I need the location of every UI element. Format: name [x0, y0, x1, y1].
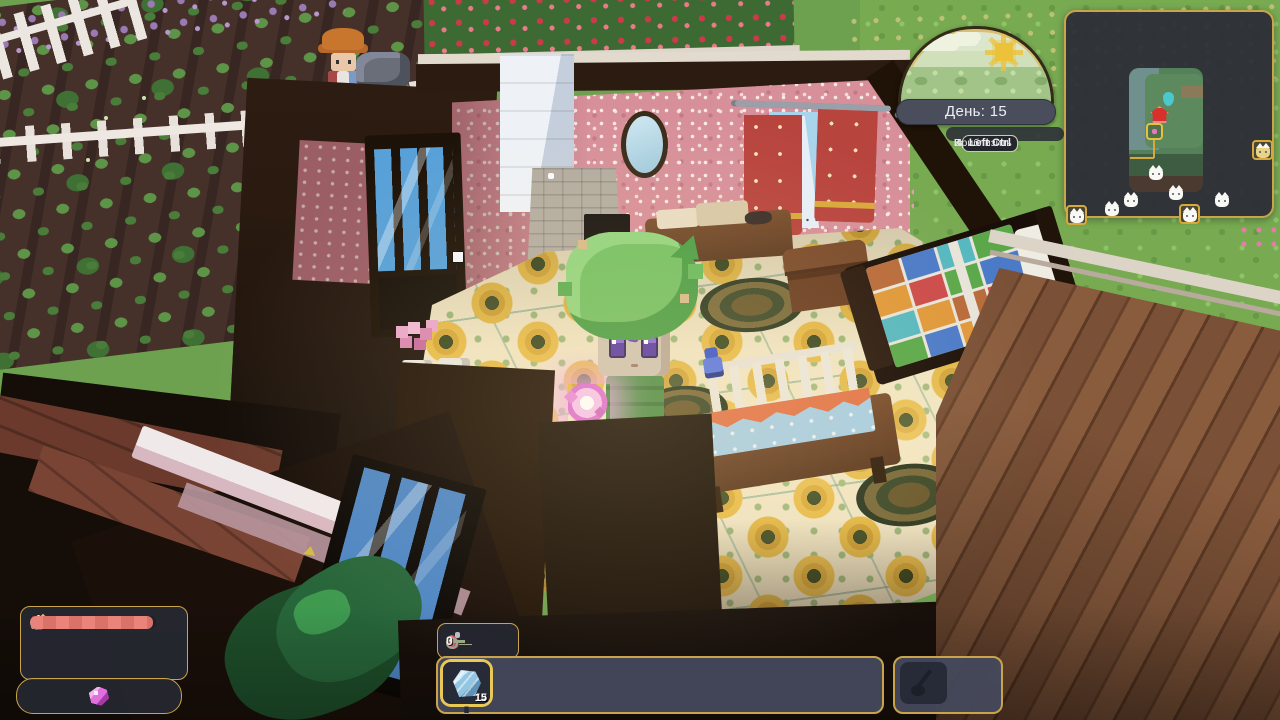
character-mouth	[631, 364, 638, 367]
cat-icon	[1169, 189, 1183, 200]
minimap-dirt-patch	[1181, 86, 1203, 98]
minimap-terrain[interactable]	[1129, 68, 1203, 192]
hair-voxel	[680, 294, 689, 303]
item-count: 5	[481, 692, 487, 704]
health-bar-row	[30, 615, 50, 630]
npc-face	[331, 53, 356, 71]
cat-icon	[1070, 212, 1084, 223]
pink-flowers	[1236, 222, 1276, 254]
potion-slots-panel	[16, 678, 182, 714]
target-dot	[548, 173, 554, 179]
game-screen: День: 15 Tab Инвентарь Q Задания M Карта…	[0, 0, 1280, 720]
day-counter: День: 15	[896, 99, 1056, 125]
cloud-icon	[953, 32, 981, 42]
cloud-icon	[917, 39, 959, 51]
wall-mirror[interactable]	[621, 111, 668, 178]
sparkle	[142, 96, 146, 100]
cat-icon	[1183, 211, 1197, 222]
npc-eye	[348, 60, 351, 64]
cat-icon	[1149, 169, 1163, 180]
health-bar-track	[30, 616, 156, 629]
deck-shading	[936, 268, 1280, 720]
sparkle	[104, 116, 108, 120]
status-bars-panel	[20, 606, 188, 680]
table-item	[656, 207, 699, 229]
pink-blossom	[396, 326, 408, 338]
sparkle	[86, 158, 90, 162]
red-curtain-right	[814, 109, 878, 223]
minimap-player-marker	[1146, 123, 1163, 140]
minimap-path	[1130, 157, 1154, 159]
keybind-hints-panel: Tab Инвентарь Q Задания M Карта Left Ctr…	[946, 127, 1064, 141]
cat-icon-framed	[1066, 205, 1087, 225]
ladle-icon	[911, 668, 935, 698]
cursor	[453, 252, 463, 262]
npc-hat	[322, 28, 364, 50]
health-bar-fill	[30, 616, 153, 629]
cat-icon	[1124, 196, 1138, 207]
sparkle-arrow	[303, 545, 316, 556]
minimap-panel[interactable]	[1064, 10, 1274, 218]
cat-icon-framed	[1179, 204, 1200, 224]
table-item	[696, 200, 749, 227]
minimap-path	[1153, 140, 1155, 158]
hair-voxel	[578, 240, 587, 249]
slot-number: 8	[443, 705, 490, 715]
extra-slots-panel	[893, 656, 1003, 714]
door-glass-panes	[374, 147, 456, 272]
resource-counters-panel: 3 0	[437, 623, 519, 659]
sun-icon	[995, 43, 1013, 61]
cat-icon-framed	[1252, 140, 1273, 160]
hotbar: 11 1 5 2 3 4	[436, 656, 884, 714]
pink-crystal-icon[interactable]	[89, 687, 109, 706]
extra-slot-2[interactable]	[900, 662, 947, 704]
cat-icon	[1105, 205, 1119, 216]
cat-icon	[1256, 147, 1270, 158]
cat-icon	[1215, 196, 1229, 207]
keybind-zoom: Left Ctrl Приблизить	[954, 134, 1018, 152]
minimap-soil-edge	[1129, 176, 1203, 192]
npc-eye	[336, 60, 339, 64]
